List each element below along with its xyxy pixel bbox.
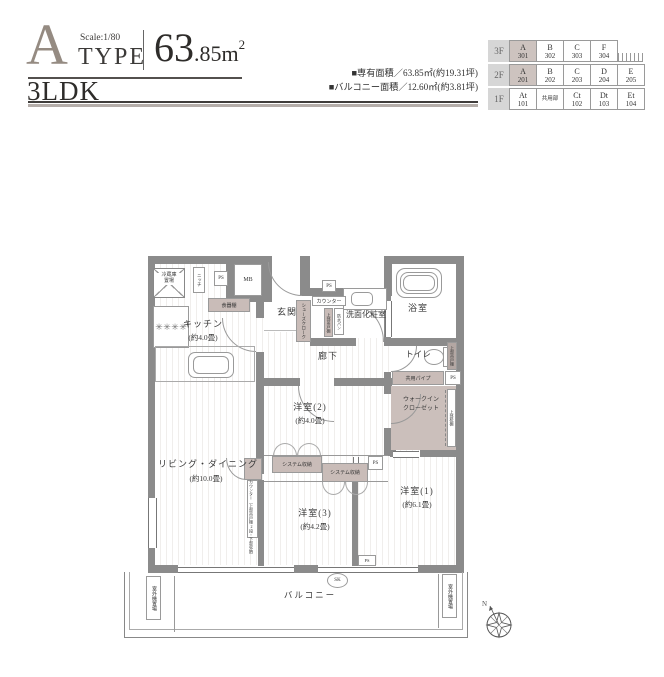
wall-segment [384, 256, 464, 264]
unit-name: A [510, 67, 536, 76]
living-size: (約10.0畳) [158, 473, 254, 484]
wall-segment [420, 450, 464, 457]
system-storage-label: システム収納 [282, 461, 312, 468]
unit-name: A [510, 43, 536, 52]
unit-number: 201 [510, 76, 536, 84]
hallway-name: 廊下 [308, 349, 348, 362]
ps-label: PS [373, 461, 379, 466]
wic-name-line2: クローゼット [396, 403, 446, 412]
fridge-label-line2: 置場 [156, 279, 182, 285]
wall-segment [256, 352, 264, 474]
unit-cell: Et104 [617, 88, 645, 110]
balcony-rail-inner [129, 572, 463, 630]
unit-cell: Ct102 [563, 88, 591, 110]
area-specs: ■専有面積／63.85㎡(約19.31坪) ■バルコニー面積／12.60㎡(約3… [238, 66, 478, 94]
compass-icon: N [476, 596, 522, 646]
unit-number: 101 [510, 100, 536, 108]
unit-cell: A301 [509, 40, 537, 62]
fridge-label: 冷蔵庫置場 [156, 273, 182, 285]
type-letter: A [26, 16, 68, 74]
unit-name: B [537, 67, 563, 76]
bathtub-innermost [403, 275, 435, 291]
toilet-name: トイレ [398, 348, 438, 360]
unit-number: 102 [564, 100, 590, 108]
wall-segment [384, 372, 391, 394]
balcony-area-line: ■バルコニー面積／12.60㎡(約3.81坪) [238, 80, 478, 94]
bedroom1-size: (約6.1畳) [382, 499, 452, 510]
kitchen-name: キッチン [160, 317, 246, 330]
unit-name: 共用部 [537, 95, 563, 104]
system-storage-box: システム収納 [272, 456, 322, 473]
unit-number: 302 [537, 52, 563, 60]
floor-table-row-1f: 1F At101 共用部 Ct102 Dt103 Et104 [488, 88, 645, 110]
bedroom1-sliding-door [393, 451, 419, 458]
upper-cabinet-label: 上部吊戸棚 [325, 309, 332, 336]
unit-number: 202 [537, 76, 563, 84]
system-storage-label: システム収納 [330, 469, 360, 476]
unit-name: B [537, 43, 563, 52]
pipe-space-box: PS [368, 456, 383, 470]
ps-label: PS [218, 276, 224, 281]
compass-north-label: N [482, 600, 487, 608]
ps-label: PS [364, 558, 369, 563]
floor-label: 3F [488, 40, 510, 62]
unit-name: Et [618, 91, 644, 100]
area-decimal: .85m [194, 41, 239, 66]
unit-number: 103 [591, 100, 617, 108]
ps-label: PS [450, 376, 456, 381]
genkan-name: 玄関 [262, 305, 312, 318]
unit-cell: B202 [536, 64, 564, 86]
unit-cell: Dt103 [590, 88, 618, 110]
shared-pipe-label: 共用パイプ [405, 375, 430, 382]
kitchen-sink-inner [193, 356, 229, 374]
upper-shelf-box: 上部枕棚 [447, 389, 456, 447]
unit-area: 63.85m2 [154, 24, 245, 71]
unit-number: 104 [618, 100, 644, 108]
niche-box: ニッチ [193, 267, 205, 293]
wall-segment [310, 338, 356, 346]
header-rule-gray [28, 104, 478, 107]
wall-segment [456, 256, 464, 572]
unit-cell: D204 [590, 64, 618, 86]
vanity-sink [351, 292, 373, 306]
counter-box: カウンター [312, 296, 346, 306]
floor-label: 2F [488, 64, 510, 86]
living-name: リビング・ダイニング [158, 457, 254, 470]
washroom-name: 洗面化粧室 [340, 309, 392, 320]
type-word: TYPE [78, 44, 146, 71]
pipe-space-box: PS [358, 555, 376, 566]
wall-segment [258, 480, 264, 566]
upper-shelf-label: 上部枕棚 [448, 390, 455, 446]
unit-number: 204 [591, 76, 617, 84]
outdoor-unit-label: 室外機置場 [443, 575, 456, 617]
scale-label: Scale:1/80 [80, 33, 120, 43]
pipe-space-box: PS [445, 371, 461, 385]
unit-name: D [591, 67, 617, 76]
balcony-partition [174, 576, 175, 632]
outdoor-unit-label: 室外機置場 [147, 577, 160, 619]
exclusive-area-line: ■専有面積／63.85㎡(約19.31坪) [238, 66, 478, 80]
bedroom2-name: 洋室(2) [275, 400, 345, 413]
floor-label: 1F [488, 88, 510, 110]
ps-label: PS [326, 284, 332, 289]
slop-sink: SK [327, 573, 348, 588]
upper-cabinet-label: 上部吊戸棚 [448, 343, 456, 369]
side-window [148, 498, 157, 548]
unit-name: C [564, 43, 590, 52]
stair-hatch-icon [618, 53, 643, 62]
outdoor-unit-space: 室外機置場 [146, 576, 161, 620]
bedroom1-name: 洋室(1) [382, 484, 452, 497]
sk-label: SK [334, 578, 340, 583]
system-storage-box: システム収納 [322, 463, 368, 482]
unit-cell: A201 [509, 64, 537, 86]
unit-number: 303 [564, 52, 590, 60]
unit-name: E [618, 67, 644, 76]
bathroom-name: 浴室 [398, 301, 438, 314]
pipe-space-box: PS [214, 271, 228, 286]
shared-pipe-box: 共用パイプ [392, 371, 444, 385]
unit-cell: E205 [617, 64, 645, 86]
unit-cell: 共用部 [536, 88, 564, 110]
pipe-space-box: PS [322, 280, 336, 292]
header-rule-dark [28, 101, 478, 103]
area-integer: 63 [154, 25, 194, 70]
balcony-partition [438, 574, 439, 628]
unit-name: At [510, 91, 536, 100]
floorplan-page: { "header": { "letter": "A", "scale": "S… [0, 0, 664, 677]
wall-segment [262, 378, 300, 386]
meter-box-label: MB [235, 265, 261, 295]
outdoor-unit-space: 室外機置場 [442, 574, 457, 618]
balcony-name: バルコニー [265, 589, 355, 601]
kitchen-size: (約4.0畳) [160, 332, 246, 343]
unit-number: 203 [564, 76, 590, 84]
counter-label: カウンター [316, 298, 341, 305]
header-divider [143, 30, 144, 70]
unit-name: Ct [564, 91, 590, 100]
unit-cell: C303 [563, 40, 591, 62]
floor-table-row-2f: 2F A201 B202 C203 D204 E205 [488, 64, 645, 86]
wic-name-line1: ウォークイン [396, 394, 446, 403]
cupboard-box: 食器棚 [208, 298, 250, 312]
unit-number: 301 [510, 52, 536, 60]
unit-number: 304 [591, 52, 617, 60]
floor-table-row-3f: 3F A301 B302 C303 F304 [488, 40, 643, 62]
upper-cabinet-box: 上部吊戸棚 [324, 308, 333, 337]
bedroom3-name: 洋室(3) [282, 506, 348, 519]
upper-cabinet-box: 上部吊戸棚 [447, 342, 457, 370]
unit-cell: F304 [590, 40, 618, 62]
unit-number: 205 [618, 76, 644, 84]
bedroom3-size: (約4.2畳) [282, 521, 348, 532]
niche-label: ニッチ [194, 268, 204, 292]
unit-cell: B302 [536, 40, 564, 62]
unit-cell: At101 [509, 88, 537, 110]
living-counter-label: カウンター（上部吊戸棚2段・下部収納） [249, 480, 253, 552]
cupboard-label: 食器棚 [221, 302, 236, 309]
unit-name: C [564, 67, 590, 76]
unit-name: Dt [591, 91, 617, 100]
bedroom2-size: (約4.0畳) [275, 415, 345, 426]
unit-name: F [591, 43, 617, 52]
unit-cell: C203 [563, 64, 591, 86]
meter-box: MB [234, 264, 262, 296]
area-superscript: 2 [239, 37, 246, 52]
